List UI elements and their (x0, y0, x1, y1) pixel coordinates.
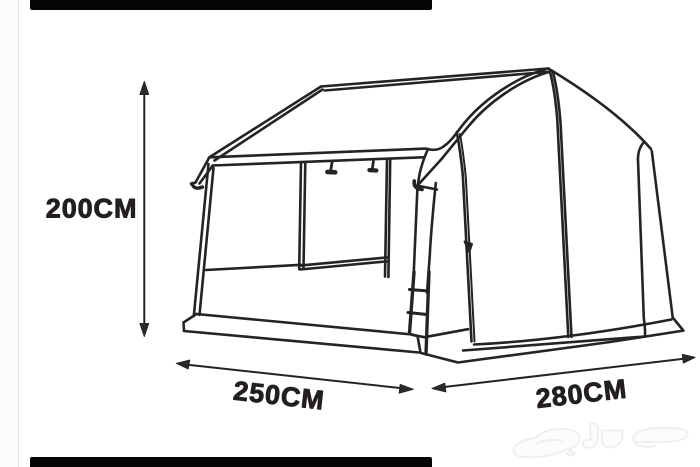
svg-text:200CM: 200CM (46, 194, 138, 224)
svg-text:280CM: 280CM (534, 374, 628, 414)
svg-text:250CM: 250CM (232, 376, 326, 416)
